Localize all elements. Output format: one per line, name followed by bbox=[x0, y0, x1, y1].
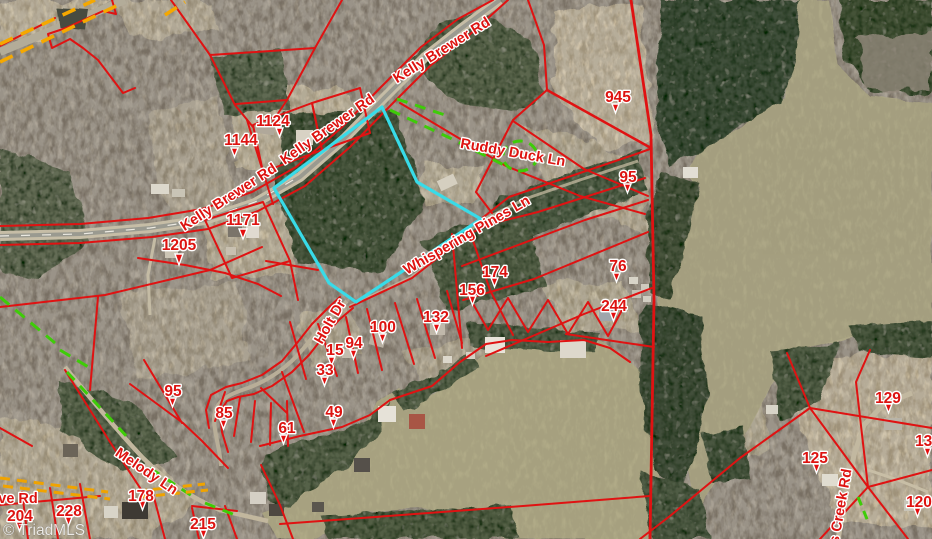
svg-text:© TriadMLS: © TriadMLS bbox=[3, 522, 85, 539]
svg-text:100: 100 bbox=[370, 319, 396, 336]
svg-text:132: 132 bbox=[423, 309, 449, 326]
svg-text:33: 33 bbox=[316, 362, 334, 379]
svg-text:156: 156 bbox=[459, 282, 485, 299]
svg-text:85: 85 bbox=[215, 405, 233, 422]
svg-text:1205: 1205 bbox=[162, 237, 197, 254]
svg-text:244: 244 bbox=[601, 298, 627, 315]
svg-text:215: 215 bbox=[190, 516, 216, 533]
svg-text:ve Rd: ve Rd bbox=[0, 491, 38, 507]
svg-text:15: 15 bbox=[326, 342, 344, 359]
svg-text:49: 49 bbox=[325, 404, 343, 421]
svg-text:61: 61 bbox=[278, 420, 296, 437]
svg-text:174: 174 bbox=[482, 264, 508, 281]
svg-text:120: 120 bbox=[906, 494, 932, 511]
svg-text:945: 945 bbox=[605, 89, 631, 106]
svg-text:95: 95 bbox=[164, 383, 182, 400]
svg-text:129: 129 bbox=[875, 390, 901, 407]
svg-text:1144: 1144 bbox=[224, 132, 258, 149]
svg-text:1171: 1171 bbox=[226, 212, 260, 229]
svg-text:139: 139 bbox=[915, 433, 932, 450]
svg-text:178: 178 bbox=[128, 488, 154, 505]
svg-text:125: 125 bbox=[802, 450, 828, 467]
svg-text:76: 76 bbox=[609, 258, 627, 275]
svg-text:228: 228 bbox=[56, 503, 82, 520]
svg-text:94: 94 bbox=[345, 335, 363, 352]
svg-text:95: 95 bbox=[619, 169, 637, 186]
svg-text:1124: 1124 bbox=[256, 113, 290, 130]
